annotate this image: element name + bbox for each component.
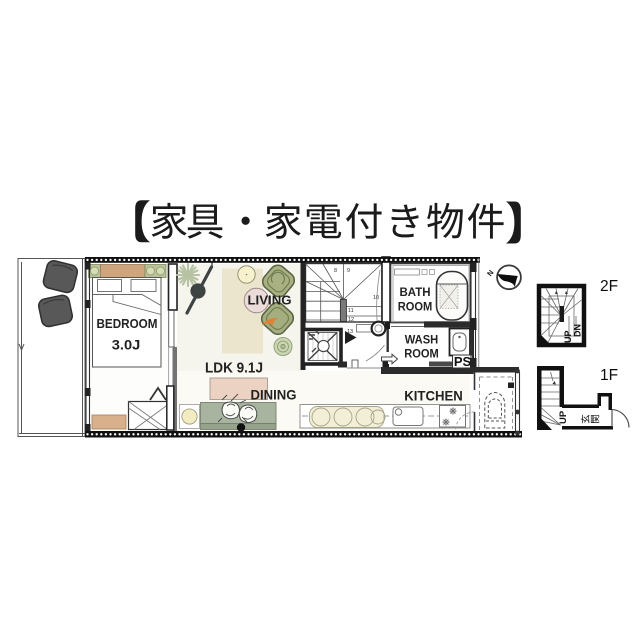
svg-text:DN: DN xyxy=(573,324,583,337)
svg-text:2F: 2F xyxy=(600,278,618,295)
svg-text:UP: UP xyxy=(558,410,569,424)
svg-text:3.0J: 3.0J xyxy=(112,338,141,353)
svg-text:UP: UP xyxy=(563,330,573,343)
svg-text:1F: 1F xyxy=(600,367,618,384)
svg-text:8: 8 xyxy=(334,268,337,274)
svg-text:LIVING: LIVING xyxy=(248,293,292,308)
svg-text:ROOM: ROOM xyxy=(398,300,433,314)
svg-text:9: 9 xyxy=(347,268,350,274)
svg-text:PS: PS xyxy=(454,354,472,369)
svg-text:BATH: BATH xyxy=(400,285,431,299)
svg-text:LDK 9.1J: LDK 9.1J xyxy=(205,361,263,377)
svg-text:ROOM: ROOM xyxy=(404,347,439,361)
svg-text:WASH: WASH xyxy=(405,333,439,347)
svg-text:10: 10 xyxy=(373,295,379,301)
svg-text:❋: ❋ xyxy=(449,407,457,418)
svg-text:12: 12 xyxy=(348,317,354,323)
svg-text:BEDROOM: BEDROOM xyxy=(97,317,158,331)
svg-text:KITCHEN: KITCHEN xyxy=(404,389,463,405)
svg-text:DINING: DINING xyxy=(251,388,297,403)
svg-text:❋: ❋ xyxy=(442,418,450,429)
svg-text:11: 11 xyxy=(348,308,354,314)
